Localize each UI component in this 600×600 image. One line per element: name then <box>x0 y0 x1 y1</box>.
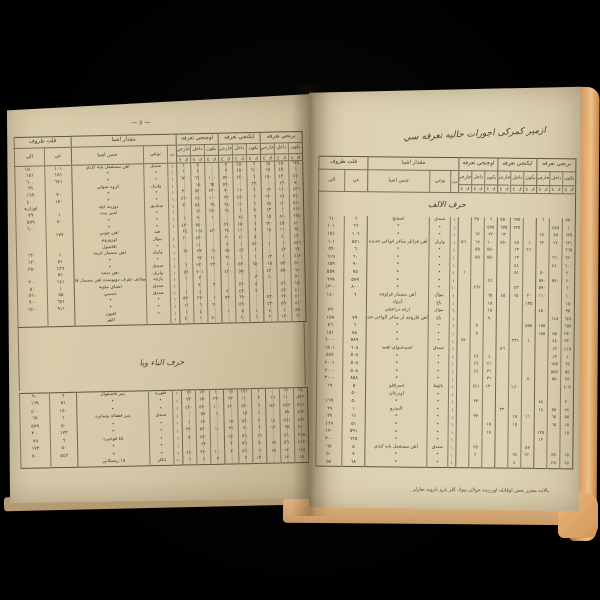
table-cell <box>458 262 471 270</box>
table-header-cell: عن <box>345 169 368 191</box>
table-cell <box>497 270 510 278</box>
table-cell: ٣٣ <box>469 399 482 407</box>
table-cell: ٦٢ <box>497 232 510 240</box>
micro-unit-label: ق <box>227 156 230 160</box>
table-cell: ١ <box>449 376 457 384</box>
table-header-cell: يكون <box>288 142 302 153</box>
table-header-cell: خارجي <box>498 171 511 185</box>
table-cell: ١٥ <box>560 453 573 461</box>
table-cell: ١٥ رشتكاني <box>78 458 150 467</box>
table-cell <box>535 347 548 355</box>
table-cell <box>548 301 561 309</box>
table-cell: ١ <box>458 270 471 278</box>
table-cell: ٤٥ <box>561 377 574 385</box>
micro-unit-label: غ <box>179 157 181 161</box>
table-cell: ١ <box>449 384 457 392</box>
table-cell: ٦ <box>484 217 497 225</box>
table-cell <box>508 445 521 453</box>
table-cell: ٥٥ <box>547 407 560 415</box>
table-cell <box>471 278 484 286</box>
table-cell <box>457 323 470 331</box>
table-cell: ٢٢ <box>484 232 497 240</box>
table-cell: ٤٣ <box>510 286 523 294</box>
table-cell <box>497 255 510 263</box>
micro-unit-label: ق <box>297 155 300 159</box>
table-header-cell: خارجي <box>260 143 274 154</box>
table-cell: ١ <box>448 444 456 452</box>
table-cell: ١ <box>449 292 457 300</box>
table-cell <box>470 293 483 301</box>
table-cell <box>509 354 522 362</box>
table-header-cell: برنجي تعرفه <box>260 131 302 143</box>
table-cell <box>457 353 470 361</box>
table-cell <box>508 399 521 407</box>
table-cell <box>482 414 495 422</box>
table-row: ٥٨٦٨٭٭١٤٢٥١٥ <box>316 458 573 468</box>
table-cell <box>497 285 510 293</box>
micro-unit-label: غ <box>235 156 237 160</box>
table-cell <box>535 377 548 385</box>
table-cell <box>470 338 483 346</box>
table-cell: ٤٤ <box>548 339 561 347</box>
table-cell <box>496 354 509 362</box>
table-cell <box>510 278 523 286</box>
table-header-cell: جنس اشيا <box>71 146 143 166</box>
table-cell <box>458 255 471 263</box>
left-page: — ٥ — قلت ظروفمقدار اشيااوچنجي تعرفهايكن… <box>7 94 312 503</box>
table-cell <box>522 308 535 316</box>
table-cell: ٢٤ <box>560 408 573 416</box>
table-cell: ٣٥ <box>547 453 560 461</box>
table-cell <box>521 400 534 408</box>
table-cell: ٢٤ <box>549 240 562 248</box>
table-cell <box>534 453 547 461</box>
table-cell: ٩٢٥ <box>510 225 523 233</box>
table-cell <box>508 392 521 400</box>
table-cell <box>496 331 509 339</box>
table-cell: ١ <box>448 406 456 414</box>
table-cell <box>521 422 534 430</box>
table-cell <box>470 300 483 308</box>
table-cell <box>535 392 548 400</box>
table-cell <box>483 331 496 339</box>
micro-unit-label: غ <box>565 188 567 192</box>
micro-unit-label: ق <box>269 156 272 160</box>
table-cell: ٦٢٥ <box>561 316 574 324</box>
table-cell: ٥٩٠ <box>536 286 549 294</box>
table-cell: ٣ <box>211 457 225 465</box>
table-cell <box>508 437 521 445</box>
micro-unit-label: غ <box>552 188 554 192</box>
table-cell: ٤٥ <box>549 233 562 241</box>
table-cell <box>522 354 535 362</box>
table-cell <box>456 460 469 468</box>
table-cell <box>469 437 482 445</box>
table-header-cell: خارجي <box>218 144 232 155</box>
table-cell <box>470 308 483 316</box>
table-cell: ٤٤ <box>470 369 483 377</box>
micro-unit-label: ق <box>505 187 508 191</box>
left-lower-table: ٩٠٦پنير قاشقوالطوربه١١٥٤٢١٠١٥٤٢١١٢١٢٤١٦٩… <box>19 387 310 469</box>
table-cell <box>510 232 523 240</box>
table-cell: ١٥٥ <box>535 324 548 332</box>
micro-unit-label: غ <box>461 187 463 191</box>
page-title: ازمير كمركى اجورات حاليه تعرفه سي <box>377 124 573 144</box>
table-cell <box>482 392 495 400</box>
micro-unit-label: ق <box>241 156 244 160</box>
right-page-content: ازمير كمركى اجورات حاليه تعرفه سي قلت ظر… <box>307 84 583 515</box>
table-header-cell: يكون <box>563 172 576 186</box>
table-cell: ٥ <box>470 331 483 339</box>
table-cell <box>523 278 536 286</box>
table-cell: ١٥ <box>510 293 523 301</box>
table-cell: ٥٥ <box>471 247 484 255</box>
table-cell <box>536 225 549 233</box>
table-cell: ١٥ <box>508 415 521 423</box>
table-cell <box>469 407 482 415</box>
table-cell <box>469 422 482 430</box>
table-cell <box>496 316 509 324</box>
table-cell: ١ <box>449 300 457 308</box>
table-cell <box>536 248 549 256</box>
table-cell <box>495 437 508 445</box>
table-cell <box>535 339 548 347</box>
table-cell: ١٣٥ <box>534 430 547 438</box>
table-cell <box>548 309 561 317</box>
table-cell <box>458 285 471 293</box>
right-page: ازمير كمركى اجورات حاليه تعرفه سي قلت ظر… <box>309 85 581 513</box>
table-cell <box>509 323 522 331</box>
table-cell: ٤ <box>197 457 211 465</box>
table-cell <box>495 422 508 430</box>
table-cell: ١ <box>449 323 457 331</box>
table-cell: ٣٠ <box>523 293 536 301</box>
table-cell <box>549 248 562 256</box>
table-cell <box>495 392 508 400</box>
table-cell: ٥٠ <box>536 271 549 279</box>
table-cell: ٥ <box>470 323 483 331</box>
table-cell: ٦٥ <box>547 423 560 431</box>
table-cell <box>482 399 495 407</box>
table-cell <box>51 460 78 468</box>
table-cell <box>483 346 496 354</box>
table-cell <box>547 445 560 453</box>
table-cell <box>456 422 469 430</box>
table-cell <box>509 369 522 377</box>
table-cell <box>495 399 508 407</box>
table-cell <box>21 460 51 468</box>
table-cell <box>521 438 534 446</box>
table-cell <box>456 391 469 399</box>
table-cell: ١٣ <box>548 347 561 355</box>
table-cell: ٥٥ <box>560 415 573 423</box>
table-cell: ١ <box>449 315 457 323</box>
table-cell: ٤ <box>522 377 535 385</box>
table-cell <box>497 278 510 286</box>
table-header-cell: غق <box>472 185 485 193</box>
table-header-cell: غق <box>550 186 563 194</box>
table-cell <box>225 456 239 464</box>
table-cell: ٦٦٠ <box>523 248 536 256</box>
table-cell: ٣٣ <box>495 407 508 415</box>
table-cell <box>496 384 509 392</box>
table-header-cell: غق <box>563 186 576 194</box>
table-cell: ٦٢ <box>471 232 484 240</box>
table-cell: ١ <box>450 270 458 278</box>
table-cell <box>458 247 471 255</box>
table-cell <box>457 376 470 384</box>
table-header-cell: يكون <box>246 143 260 154</box>
table-cell <box>457 308 470 316</box>
table-cell: ١ <box>449 346 457 354</box>
table-cell <box>482 452 495 460</box>
table-cell <box>549 286 562 294</box>
table-cell <box>535 316 548 324</box>
table-cell <box>509 301 522 309</box>
section-title-ba: حرف الباء ويا <box>19 355 304 370</box>
table-cell <box>535 385 548 393</box>
table-cell <box>457 369 470 377</box>
micro-unit-label: ق <box>185 157 188 161</box>
table-cell <box>470 346 483 354</box>
table-cell <box>267 455 281 463</box>
micro-unit-label: ق <box>199 157 202 161</box>
table-cell <box>458 232 471 240</box>
table-cell: ١٥ <box>560 430 573 438</box>
table-header-cell: ايكنجي تعرفه <box>498 158 537 171</box>
table-cell: ١٥ <box>483 308 496 316</box>
table-cell <box>522 362 535 370</box>
table-cell: ١٥ <box>482 422 495 430</box>
micro-unit-label: ق <box>466 187 469 191</box>
table-cell <box>522 316 535 324</box>
table-cell <box>471 224 484 232</box>
table-cell: ١١ <box>521 415 534 423</box>
table-cell: ٥٥ <box>561 370 574 378</box>
table-cell <box>523 217 536 225</box>
table-cell: ٭ <box>365 459 427 467</box>
table-cell: ٦٥٥ <box>561 324 574 332</box>
table-cell: ١ <box>449 338 457 346</box>
table-cell: ٣٠ <box>560 400 573 408</box>
table-cell: ١ <box>448 429 456 437</box>
table-cell <box>535 369 548 377</box>
table-cell: ١٢٠ <box>521 453 534 461</box>
table-header-cell: غق <box>459 185 472 193</box>
table-cell: ١٠ <box>450 285 458 293</box>
page-number-marker: — ٥ — <box>131 119 150 126</box>
table-cell <box>547 430 560 438</box>
table-cell <box>548 392 561 400</box>
table-cell <box>457 361 470 369</box>
table-cell <box>456 429 469 437</box>
table-cell: ٤٤ <box>534 400 547 408</box>
table-cell <box>495 445 508 453</box>
table-cell: ٦٦٠ <box>549 256 562 264</box>
micro-unit-label: غ <box>539 187 541 191</box>
table-cell <box>536 255 549 263</box>
table-cell <box>509 377 522 385</box>
table-cell: ٣ <box>239 456 253 464</box>
table-cell <box>482 437 495 445</box>
footnote: بالاده محرر بعض اوقاتله اوزرنده جولان بي… <box>333 486 549 494</box>
table-header-cell: يكون <box>204 144 218 155</box>
table-cell: ٢٥ <box>547 461 560 469</box>
table-cell: ٦٠ <box>562 286 575 294</box>
table-header-cell: الي <box>14 148 44 167</box>
table-cell: ٣٣ <box>469 414 482 422</box>
table-cell <box>535 354 548 362</box>
table-cell: آنكلر <box>150 458 174 466</box>
table-cell: ١ <box>562 225 575 233</box>
table-cell: ١ <box>561 354 574 362</box>
table-cell: ١٥ <box>508 453 521 461</box>
table-cell: ٦ <box>536 217 549 225</box>
table-cell: ٤ <box>469 452 482 460</box>
table-cell: ٢٥ <box>469 445 482 453</box>
table-cell <box>456 414 469 422</box>
table-cell: ١٥٥ <box>548 362 561 370</box>
table-header-cell: خارجي <box>537 171 550 185</box>
table-cell <box>521 430 534 438</box>
table-cell <box>483 323 496 331</box>
table-cell: ٦٧٥ <box>510 217 523 225</box>
table-header-cell: غق <box>511 185 524 193</box>
table-cell <box>496 361 509 369</box>
table-header-cell: غق <box>485 185 498 193</box>
table-cell: ١ <box>449 330 457 338</box>
table-header-cell: داخل <box>511 171 524 185</box>
table-cell: ٦٧٥ <box>497 225 510 233</box>
micro-unit-label: ق <box>531 187 534 191</box>
table-cell: ١٣٠ <box>253 456 267 464</box>
table-cell: ٤٤ <box>470 353 483 361</box>
table-header-cell: يكون <box>485 171 498 185</box>
table-header-cell: قلت ظروف <box>319 156 368 170</box>
table-cell: ١ <box>449 361 457 369</box>
table-cell: ١٣ <box>510 255 523 263</box>
table-cell <box>521 460 534 468</box>
table-cell <box>469 460 482 468</box>
table-cell <box>456 444 469 452</box>
table-cell: ٦٨ <box>342 458 365 466</box>
table-cell <box>497 247 510 255</box>
table-cell <box>495 414 508 422</box>
micro-unit-label: غ <box>277 155 279 159</box>
table-cell <box>522 331 535 339</box>
table-cell: ١ <box>448 452 456 460</box>
table-cell <box>509 361 522 369</box>
micro-unit-label: ق <box>213 157 216 161</box>
table-header-cell: داخل <box>472 171 485 185</box>
table-cell: ١ <box>183 457 197 465</box>
table-cell <box>522 346 535 354</box>
table-cell: ١ <box>522 339 535 347</box>
table-cell <box>523 286 536 294</box>
table-cell: ٦٥ <box>483 293 496 301</box>
table-cell <box>456 437 469 445</box>
table-cell <box>548 385 561 393</box>
table-header-cell: عن <box>44 147 71 166</box>
table-cell <box>482 407 495 415</box>
table-cell <box>496 369 509 377</box>
table-cell: ٦٠٠ <box>562 263 575 271</box>
table-cell <box>521 407 534 415</box>
table-cell <box>522 369 535 377</box>
table-cell: ١٣ <box>510 248 523 256</box>
table-cell: ٦١٥ <box>548 316 561 324</box>
table-header-cell: خارجي <box>459 171 472 185</box>
table-cell: ٥٨ <box>316 458 342 466</box>
table-cell: ٣٣١ <box>509 339 522 347</box>
table-cell <box>549 218 562 226</box>
table-cell <box>457 346 470 354</box>
micro-unit-label: غ <box>474 187 476 191</box>
table-cell: ٤١٥ <box>561 347 574 355</box>
table-header-cell: ايكنجي تعرفه <box>218 132 260 144</box>
table-cell: ٦٦٥ <box>562 248 575 256</box>
table-header-cell: غق <box>524 185 537 193</box>
table-cell <box>456 406 469 414</box>
table-cell: ٦٣٠ <box>562 256 575 264</box>
table-cell: ٥٥٠ <box>484 247 497 255</box>
table-cell: ٢٠ <box>562 271 575 279</box>
table-cell: ٥٥ <box>548 377 561 385</box>
table-cell: ١ <box>523 240 536 248</box>
micro-unit-label: غ <box>207 157 209 161</box>
table-cell: ١٥ <box>482 430 495 438</box>
table-cell <box>484 285 497 293</box>
table-header-cell: داخل <box>190 145 204 156</box>
table-header-cell: نوعي <box>143 145 167 163</box>
table-cell <box>509 331 522 339</box>
table-cell: ١ <box>450 217 458 225</box>
table-cell <box>456 452 469 460</box>
table-header-cell: داخل <box>274 143 288 154</box>
table-cell <box>497 263 510 271</box>
left-upper-table: قلت ظروفمقدار اشيااوچنجي تعرفهايكنجي تعر… <box>14 131 307 328</box>
table-cell <box>534 460 547 468</box>
table-cell <box>509 308 522 316</box>
table-cell: ١ <box>450 247 458 255</box>
table-cell: ٥٧ <box>521 445 534 453</box>
table-cell <box>548 324 561 332</box>
table-cell: ٤٤ <box>510 263 523 271</box>
table-cell: ١٥ <box>295 455 309 463</box>
table-cell: ٤٥ <box>510 240 523 248</box>
table-header-cell: مقدار اشيا <box>368 157 459 171</box>
table-cell: ١٥ <box>483 300 496 308</box>
table-cell: ١١٠ <box>536 293 549 301</box>
table-cell: ٥٥٥ <box>522 324 535 332</box>
table-header-cell: عدد <box>451 171 459 193</box>
table-cell <box>561 392 574 400</box>
table-cell <box>535 362 548 370</box>
table-cell <box>549 294 562 302</box>
table-cell: ١٥ <box>560 461 573 469</box>
table-cell <box>457 293 470 301</box>
table-header-cell: عدد <box>167 145 176 163</box>
section-title-alif: حرف الالف <box>318 191 575 218</box>
table-cell: ١٣٠ <box>281 455 295 463</box>
table-header-cell: اوچنجي تعرفه <box>176 133 218 145</box>
table-cell <box>549 271 562 279</box>
table-cell: ٤٤ <box>510 270 523 278</box>
table-cell: ٥٥ <box>548 331 561 339</box>
section-divider-box: حرف الباء ويا <box>18 321 306 391</box>
table-cell <box>523 233 536 241</box>
table-cell <box>536 263 549 271</box>
